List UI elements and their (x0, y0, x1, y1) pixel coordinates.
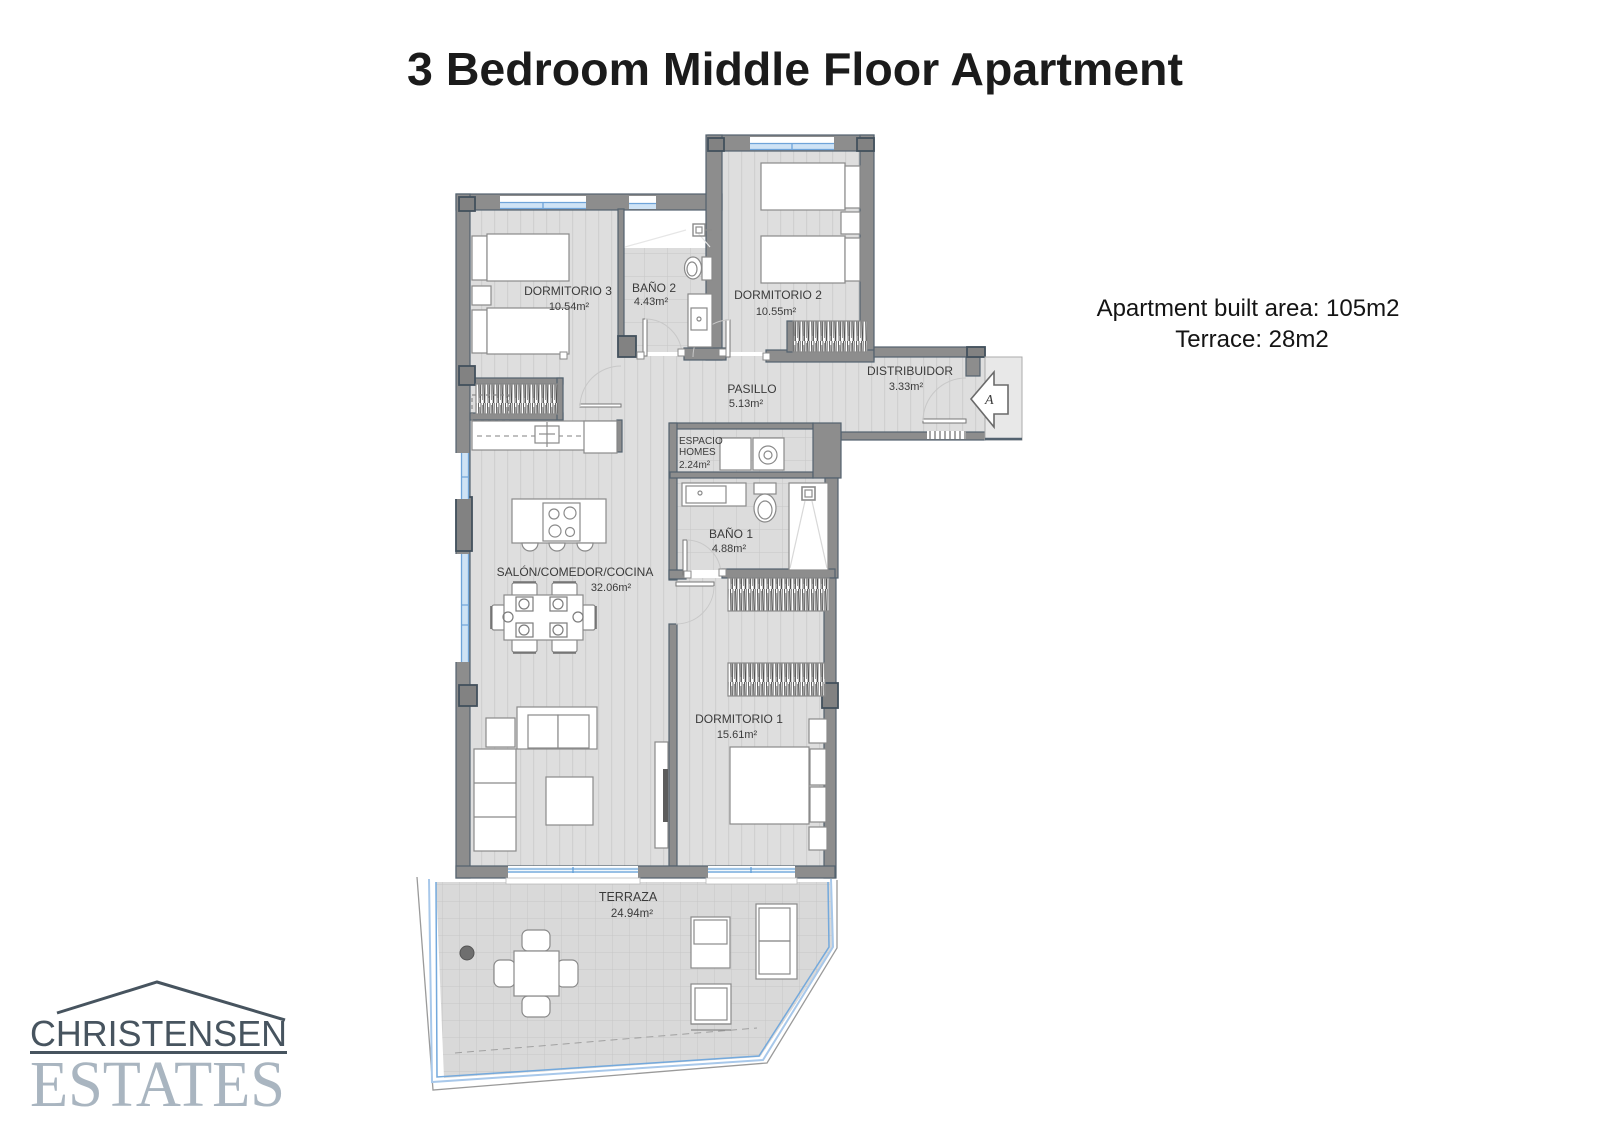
svg-text:Apartment built area: 105m2: Apartment built area: 105m2 (1097, 295, 1400, 322)
svg-text:DISTRIBUIDOR: DISTRIBUIDOR (867, 364, 953, 378)
svg-text:HOMES: HOMES (679, 447, 716, 458)
svg-text:DORMITORIO 3: DORMITORIO 3 (524, 284, 612, 298)
svg-text:Terrace: 28m2: Terrace: 28m2 (1175, 326, 1328, 353)
svg-text:ESTATES: ESTATES (30, 1048, 285, 1121)
svg-text:3.33m²: 3.33m² (889, 381, 924, 393)
svg-text:10.54m²: 10.54m² (549, 301, 590, 313)
svg-text:BAÑO 1: BAÑO 1 (709, 527, 753, 541)
svg-text:4.43m²: 4.43m² (634, 296, 669, 308)
svg-text:10.55m²: 10.55m² (756, 306, 797, 318)
svg-text:5.13m²: 5.13m² (729, 398, 764, 410)
svg-text:24.94m²: 24.94m² (611, 908, 653, 920)
svg-text:TERRAZA: TERRAZA (599, 890, 658, 904)
svg-text:A: A (984, 393, 994, 408)
svg-text:BAÑO 2: BAÑO 2 (632, 281, 676, 295)
svg-text:DORMITORIO 2: DORMITORIO 2 (734, 288, 822, 302)
svg-text:ESPACIO: ESPACIO (679, 436, 723, 447)
svg-text:3 Bedroom Middle Floor Apartme: 3 Bedroom Middle Floor Apartment (407, 43, 1183, 95)
svg-text:SALÓN/COMEDOR/COCINA: SALÓN/COMEDOR/COCINA (497, 564, 654, 579)
svg-text:32.06m²: 32.06m² (591, 582, 632, 594)
svg-text:DORMITORIO 1: DORMITORIO 1 (695, 712, 783, 726)
svg-text:15.61m²: 15.61m² (717, 729, 758, 741)
svg-text:PASILLO: PASILLO (727, 382, 776, 396)
svg-text:4.88m²: 4.88m² (712, 543, 747, 555)
svg-text:2.24m²: 2.24m² (679, 460, 711, 471)
